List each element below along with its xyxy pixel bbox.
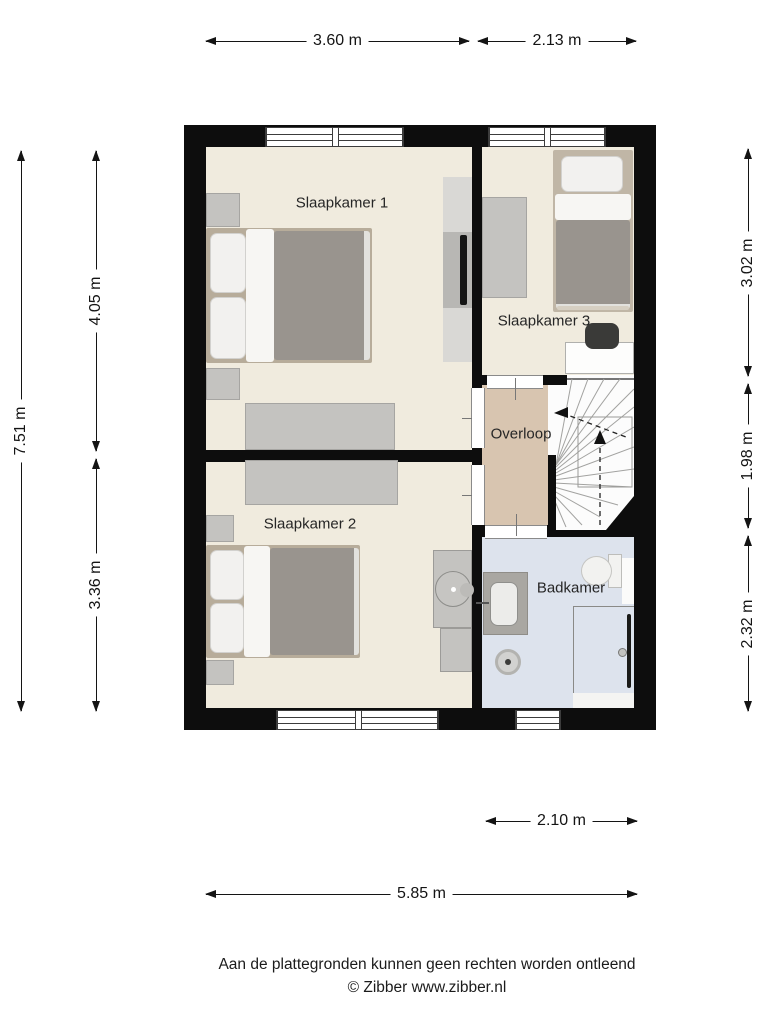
bed-footboard [557, 306, 629, 310]
dimension-label: 2.32 m [739, 592, 757, 655]
nightstand [206, 193, 240, 227]
dresser [440, 628, 472, 672]
floorplan: Slaapkamer 1 Slaapkamer 2 Slaapkamer 3 O… [184, 125, 656, 730]
arrow-right-icon [627, 817, 638, 825]
dimension-label: 3.02 m [739, 231, 757, 294]
door-opening-slaapkamer-1 [471, 388, 485, 448]
dimension-right-3: 2.32 m [740, 535, 756, 712]
dimension-right-2: 1.98 m [740, 383, 756, 529]
shower-tray-edge [573, 693, 634, 708]
nightstand [206, 660, 234, 685]
desk [245, 460, 398, 505]
shower-drain [495, 649, 521, 675]
dimension-label: 2.13 m [526, 32, 589, 50]
duvet [270, 548, 359, 655]
duvet [556, 220, 630, 309]
room-overloop [482, 385, 548, 525]
dimension-top-1: 3.60 m [205, 33, 470, 49]
dimension-right-1: 3.02 m [740, 148, 756, 377]
arrow-right-icon [627, 890, 638, 898]
pillow [210, 297, 246, 359]
nightstand [206, 515, 234, 542]
window-mullion [332, 128, 339, 146]
floorplan-page: 3.60 m 2.13 m 7.51 m 4.05 m 3.36 m 3.02 … [0, 0, 768, 1024]
dimension-bottom-total: 5.85 m [205, 886, 638, 902]
arrow-up-icon [744, 383, 752, 394]
arrow-up-icon [744, 148, 752, 159]
drain-dot [505, 659, 511, 665]
arrow-right-icon [626, 37, 637, 45]
pillow [210, 550, 244, 600]
arrow-up-icon [92, 458, 100, 469]
room-label-slaapkamer-1: Slaapkamer 1 [296, 195, 389, 212]
dimension-label: 3.60 m [306, 32, 369, 50]
chair-dot [451, 587, 456, 592]
arrow-down-icon [744, 701, 752, 712]
arrow-up-icon [17, 150, 25, 161]
window [265, 127, 404, 147]
dimension-left-total: 7.51 m [13, 150, 29, 712]
room-label-slaapkamer-3: Slaapkamer 3 [498, 313, 591, 330]
arrow-left-icon [477, 37, 488, 45]
window-glass-line [517, 717, 559, 724]
dimension-left-2: 3.36 m [88, 458, 104, 712]
pillow [561, 156, 623, 192]
window [276, 710, 439, 730]
bed-sheet [555, 194, 631, 220]
bed-sheet [244, 546, 270, 657]
nightstand [206, 368, 240, 400]
arrow-up-icon [92, 150, 100, 161]
dimension-left-1: 4.05 m [88, 150, 104, 452]
radiator [622, 558, 634, 604]
staircase [548, 375, 634, 537]
chair-notch [460, 583, 474, 597]
arrow-left-icon [485, 817, 496, 825]
dimension-top-2: 2.13 m [477, 33, 637, 49]
bed-sheet [246, 229, 274, 362]
single-bed [553, 150, 633, 312]
door-opening-badkamer [485, 525, 547, 539]
duvet [274, 231, 370, 360]
double-bed [206, 545, 360, 658]
dimension-label: 2.10 m [530, 812, 593, 830]
shower-door-handle [618, 648, 627, 657]
washbasin [490, 582, 518, 626]
window [488, 127, 606, 147]
footer-copyright: © Zibber www.zibber.nl [218, 976, 635, 999]
arrow-down-icon [92, 441, 100, 452]
desk [245, 403, 395, 450]
footer-disclaimer: Aan de plattegronden kunnen geen rechten… [218, 953, 635, 976]
tv-icon [460, 235, 467, 305]
dimension-label: 1.98 m [739, 425, 757, 488]
door-opening-slaapkamer-2 [471, 465, 485, 525]
arrow-left-icon [205, 37, 216, 45]
arrow-down-icon [17, 701, 25, 712]
door-opening-slaapkamer-3 [487, 375, 543, 389]
chair [435, 571, 471, 607]
washbasin-cabinet [483, 572, 528, 635]
window-mullion [544, 128, 551, 146]
pillow [210, 233, 246, 293]
dimension-bottom-small: 2.10 m [485, 813, 638, 829]
arrow-down-icon [744, 366, 752, 377]
arrow-left-icon [205, 890, 216, 898]
arrow-down-icon [92, 701, 100, 712]
tap-icon [476, 602, 489, 604]
window-mullion [355, 711, 362, 729]
room-label-badkamer: Badkamer [537, 580, 605, 597]
tv-cabinet-middle [443, 232, 472, 308]
room-label-slaapkamer-2: Slaapkamer 2 [264, 516, 357, 533]
dimension-label: 4.05 m [87, 270, 105, 333]
arrow-right-icon [459, 37, 470, 45]
double-bed [206, 228, 372, 363]
footer: Aan de plattegronden kunnen geen rechten… [218, 953, 635, 999]
arrow-up-icon [744, 535, 752, 546]
window [515, 710, 561, 730]
dimension-label: 3.36 m [87, 554, 105, 617]
shower-glass-door [627, 614, 631, 688]
pillow [210, 603, 244, 653]
wardrobe [482, 197, 527, 298]
room-label-overloop: Overloop [491, 426, 552, 443]
arrow-down-icon [744, 518, 752, 529]
dimension-label: 5.85 m [390, 885, 453, 903]
dimension-label: 7.51 m [12, 400, 30, 463]
